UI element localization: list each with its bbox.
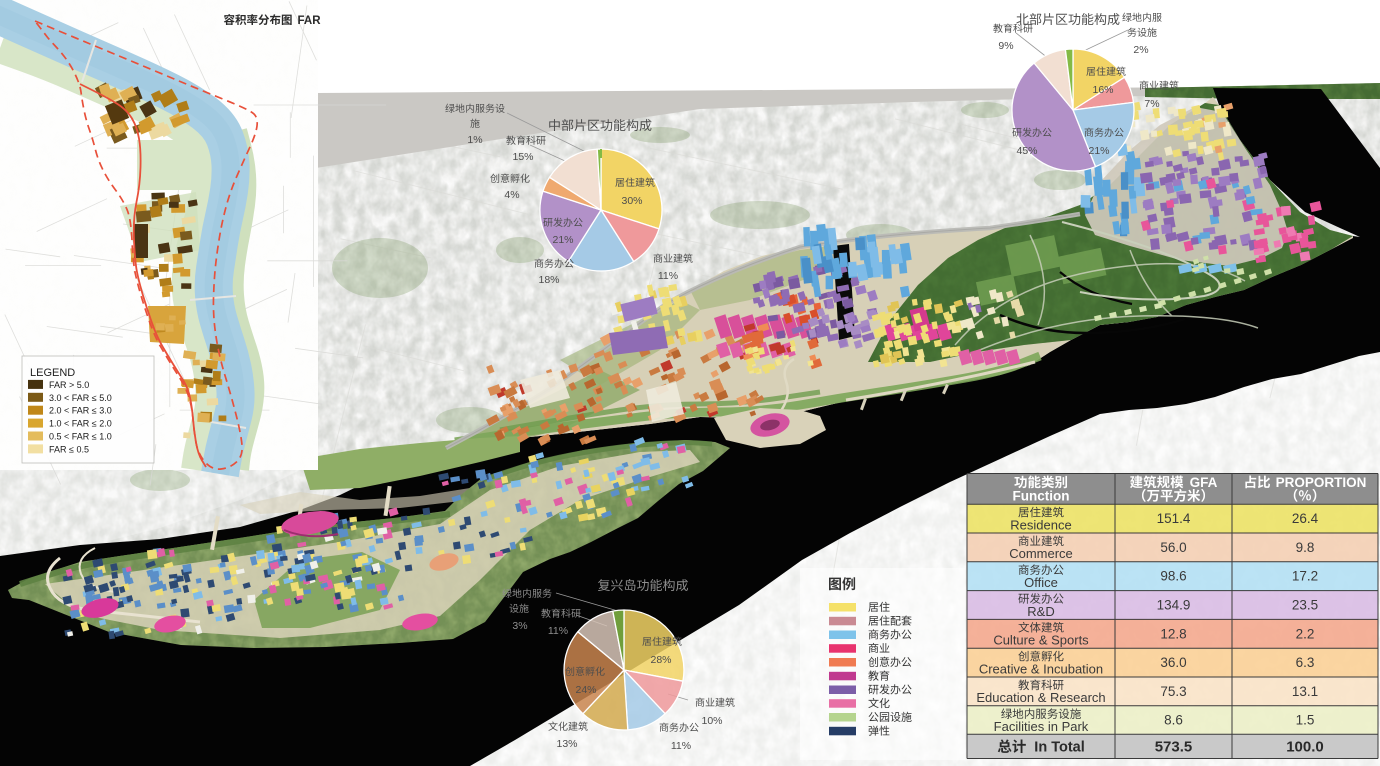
svg-text:3%: 3% — [512, 620, 527, 632]
svg-text:In Total: In Total — [1034, 740, 1084, 756]
svg-text:Office: Office — [1024, 575, 1058, 590]
svg-text:6.3: 6.3 — [1296, 655, 1315, 670]
svg-text:1.5: 1.5 — [1296, 713, 1315, 728]
svg-text:FAR > 5.0: FAR > 5.0 — [49, 380, 89, 390]
svg-text:9%: 9% — [998, 40, 1013, 52]
svg-text:Residence: Residence — [1010, 517, 1071, 532]
svg-text:8.6: 8.6 — [1164, 713, 1183, 728]
svg-text:11%: 11% — [658, 270, 678, 282]
svg-text:LEGEND: LEGEND — [30, 367, 75, 379]
svg-text:12.8: 12.8 — [1160, 626, 1186, 641]
svg-text:18%: 18% — [538, 274, 559, 286]
svg-text:R&D: R&D — [1027, 604, 1054, 619]
svg-text:21%: 21% — [1088, 145, 1109, 157]
svg-text:Culture & Sports: Culture & Sports — [993, 633, 1089, 648]
svg-text:13%: 13% — [556, 738, 577, 750]
svg-text:30%: 30% — [621, 195, 642, 207]
svg-text:Function: Function — [1013, 489, 1070, 504]
svg-text:4%: 4% — [504, 189, 519, 201]
svg-text:9.8: 9.8 — [1296, 540, 1315, 555]
svg-text:Education & Research: Education & Research — [976, 690, 1105, 705]
svg-text:1%: 1% — [467, 134, 482, 146]
svg-text:3.0 < FAR ≤ 5.0: 3.0 < FAR ≤ 5.0 — [49, 393, 112, 403]
svg-text:151.4: 151.4 — [1157, 511, 1191, 526]
svg-text:7%: 7% — [1144, 98, 1159, 110]
svg-text:2.2: 2.2 — [1296, 626, 1315, 641]
svg-text:2%: 2% — [1133, 44, 1148, 56]
svg-text:134.9: 134.9 — [1157, 598, 1191, 613]
svg-text:17.2: 17.2 — [1292, 569, 1318, 584]
svg-text:36.0: 36.0 — [1160, 655, 1186, 670]
svg-text:PROPORTION: PROPORTION — [1276, 475, 1367, 490]
svg-text:Commerce: Commerce — [1009, 546, 1073, 561]
svg-text:56.0: 56.0 — [1160, 540, 1186, 555]
svg-text:23.5: 23.5 — [1292, 598, 1318, 613]
svg-text:2.0 < FAR ≤ 3.0: 2.0 < FAR ≤ 3.0 — [49, 406, 112, 416]
svg-text:13.1: 13.1 — [1292, 684, 1318, 699]
svg-text:15%: 15% — [512, 151, 533, 163]
svg-text:28%: 28% — [650, 654, 671, 666]
svg-text:21%: 21% — [552, 234, 573, 246]
svg-text:11%: 11% — [548, 625, 568, 637]
svg-text:FAR: FAR — [298, 15, 322, 27]
svg-text:45%: 45% — [1016, 145, 1037, 157]
svg-text:0.5 < FAR ≤ 1.0: 0.5 < FAR ≤ 1.0 — [49, 432, 112, 442]
svg-text:100.0: 100.0 — [1286, 739, 1324, 756]
svg-text:24%: 24% — [575, 684, 596, 696]
svg-text:573.5: 573.5 — [1155, 739, 1193, 756]
svg-text:10%: 10% — [701, 715, 722, 727]
svg-text:1.0 < FAR ≤ 2.0: 1.0 < FAR ≤ 2.0 — [49, 419, 112, 429]
svg-text:26.4: 26.4 — [1292, 511, 1319, 526]
svg-text:FAR ≤ 0.5: FAR ≤ 0.5 — [49, 444, 89, 454]
svg-text:Facilities in Park: Facilities in Park — [994, 719, 1089, 734]
svg-text:16%: 16% — [1092, 84, 1113, 96]
svg-text:GFA: GFA — [1190, 475, 1218, 490]
svg-text:11%: 11% — [671, 740, 691, 752]
svg-text:98.6: 98.6 — [1160, 569, 1186, 584]
svg-text:Creative & Incubation: Creative & Incubation — [979, 661, 1103, 676]
svg-text:75.3: 75.3 — [1160, 684, 1186, 699]
